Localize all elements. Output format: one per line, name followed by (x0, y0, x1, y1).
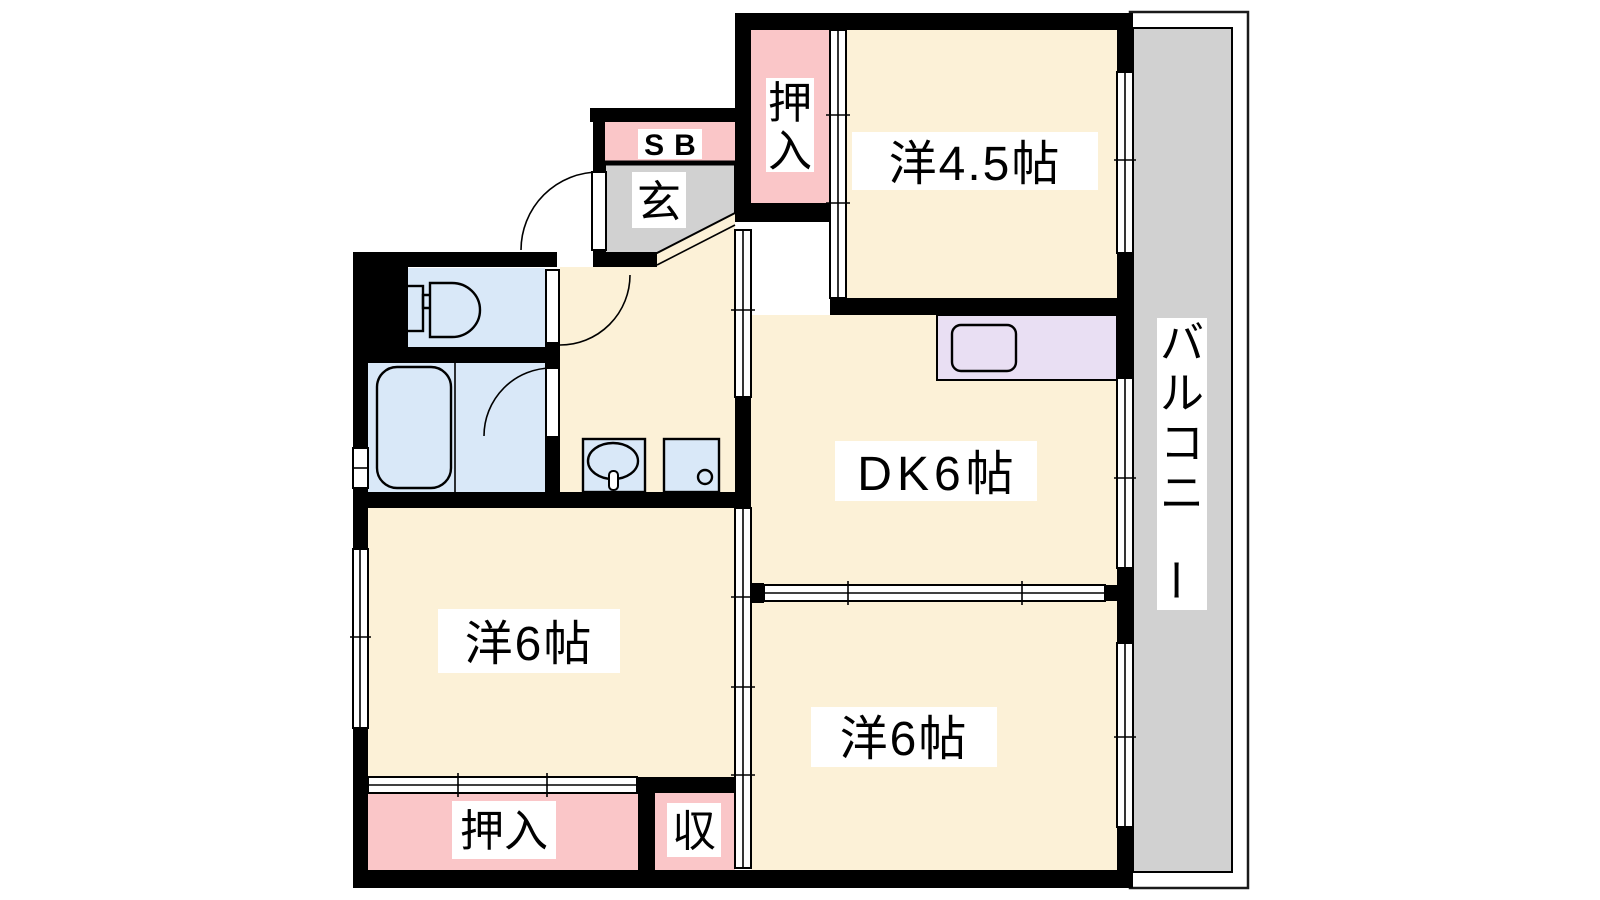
window-western6-east (1114, 643, 1136, 827)
sliding-door-western6-bottom-west (731, 508, 755, 868)
sliding-door-closet-bottom (368, 773, 637, 797)
sliding-door-hall-dk (731, 230, 755, 397)
partition-left-cap (751, 583, 764, 603)
wall-closet-storage-divider (638, 777, 655, 870)
wall-shoebox-top (590, 108, 751, 122)
label-entrance: 玄 (637, 178, 681, 227)
label-western6-left: 洋6帖 (465, 618, 594, 671)
washbasin-icon (583, 439, 645, 492)
label-shoebox: SB (644, 129, 706, 162)
wall-top (735, 13, 1133, 30)
label-closet-bottom: 押入 (460, 807, 548, 856)
wall-bath-right-lower (545, 437, 560, 492)
window-dk-east (1114, 378, 1136, 568)
window-western6-west (350, 549, 371, 728)
label-western45: 洋4.5帖 (889, 138, 1062, 191)
sliding-door-western45 (826, 30, 850, 298)
wall-genkan-left-upper (593, 108, 605, 172)
wall-stub-between-doors (545, 342, 560, 367)
wall-below-top-closet (735, 203, 830, 222)
entry-door-leaf (592, 172, 606, 250)
wall-hall-bottom (353, 492, 751, 508)
toilet-door-leaf (546, 270, 559, 343)
entry-door (521, 172, 606, 250)
label-closet-top: 押入 (768, 79, 812, 176)
label-storage: 収 (672, 807, 716, 856)
wall-under-genkan (593, 253, 657, 267)
kitchen-counter-icon (937, 315, 1117, 380)
wall-toilet-bath-divider (353, 347, 560, 363)
wall-south-outer (353, 870, 1133, 888)
washing-machine-pan-icon (664, 439, 719, 492)
wall-above-storage (655, 777, 735, 793)
window-western45-east (1114, 72, 1136, 253)
wall-hall-dk (735, 397, 751, 508)
wall-north-left (353, 252, 557, 267)
sliding-partition-dk-western6 (764, 581, 1105, 605)
wall-dk-top (830, 298, 1117, 315)
bathroom-floor (368, 363, 545, 492)
bathroom-door-leaf (546, 368, 559, 437)
wall-toilet-left-block (368, 267, 408, 348)
label-dk: DK6帖 (857, 448, 1018, 501)
floor-plan: 洋4.5帖 DK6帖 洋6帖 洋6帖 押入 収 SB 玄 押入 バルコニー (0, 0, 1600, 900)
label-western6-bottom: 洋6帖 (840, 713, 969, 766)
window-bathroom-west (353, 448, 368, 488)
